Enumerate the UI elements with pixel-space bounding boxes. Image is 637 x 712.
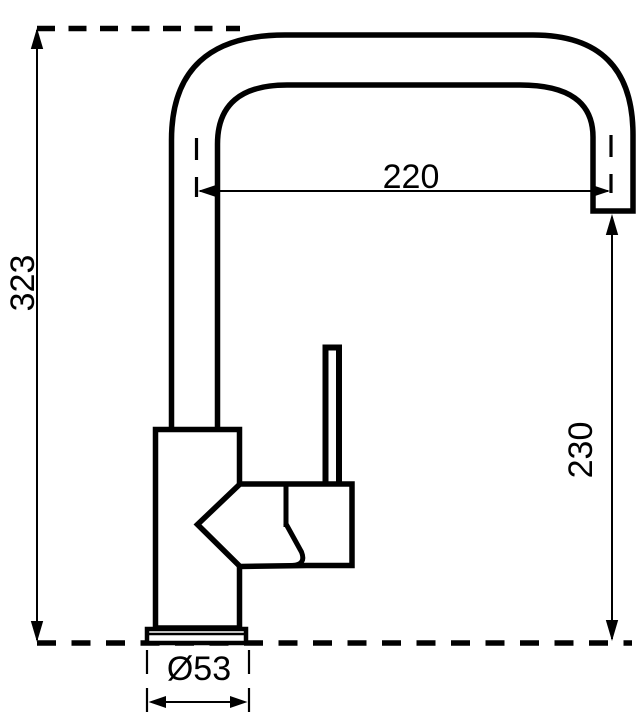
outlet-height-value: 230 (562, 422, 600, 479)
base-diameter-dimension: Ø53 (147, 650, 249, 712)
technical-drawing-svg: 323 220 230 Ø53 (0, 0, 637, 712)
spout-reach-value: 220 (383, 158, 440, 196)
arrowhead-down-icon (606, 620, 618, 641)
overall-height-dimension: 323 (4, 28, 43, 642)
base-diameter-value: Ø53 (167, 650, 231, 688)
faucet-spout (172, 35, 634, 430)
faucet-lever-handle (326, 348, 340, 485)
outlet-height-dimension: 230 (562, 214, 618, 641)
arrowhead-down-icon (31, 621, 43, 642)
overall-height-value: 323 (4, 255, 42, 312)
base-flange (147, 629, 246, 643)
faucet-dimension-drawing: 323 220 230 Ø53 (0, 0, 637, 712)
spout-reach-dimension: 220 (198, 158, 610, 197)
arrowhead-right-icon (230, 696, 248, 708)
arrowhead-up-icon (606, 214, 618, 235)
arrowhead-left-icon (149, 696, 167, 708)
